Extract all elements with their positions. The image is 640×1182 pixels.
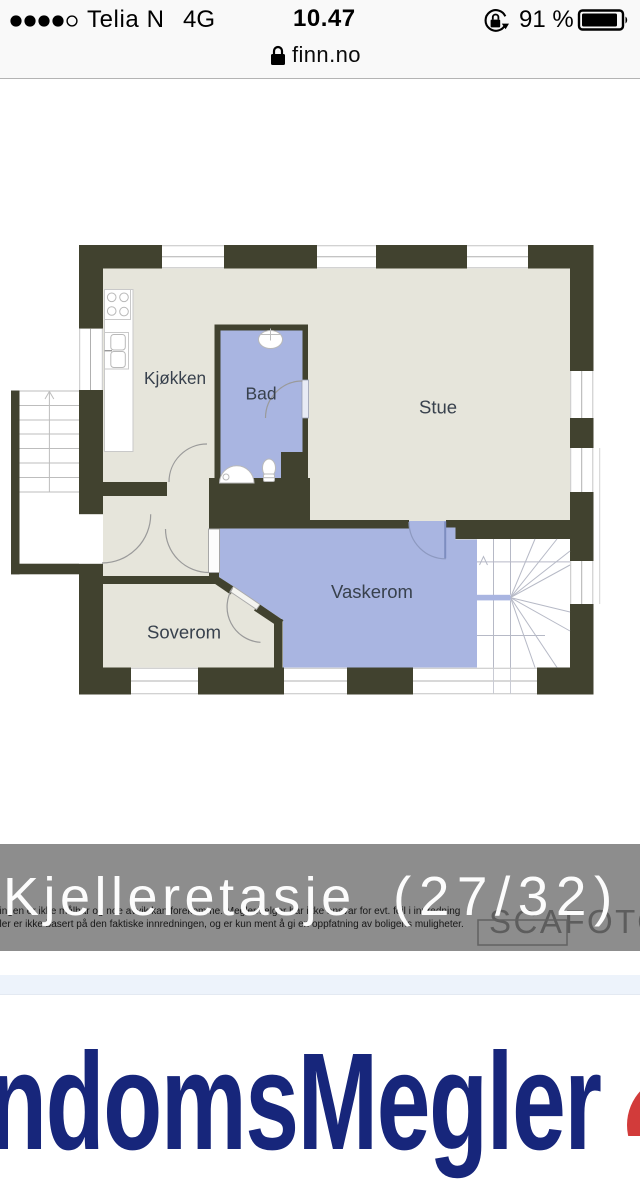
svg-text:Vaskerom: Vaskerom (331, 581, 413, 602)
svg-text:Stue: Stue (419, 397, 457, 418)
svg-text:Kjøkken: Kjøkken (144, 368, 206, 388)
svg-text:Bad: Bad (246, 384, 277, 404)
svg-text:Soverom: Soverom (147, 622, 221, 643)
